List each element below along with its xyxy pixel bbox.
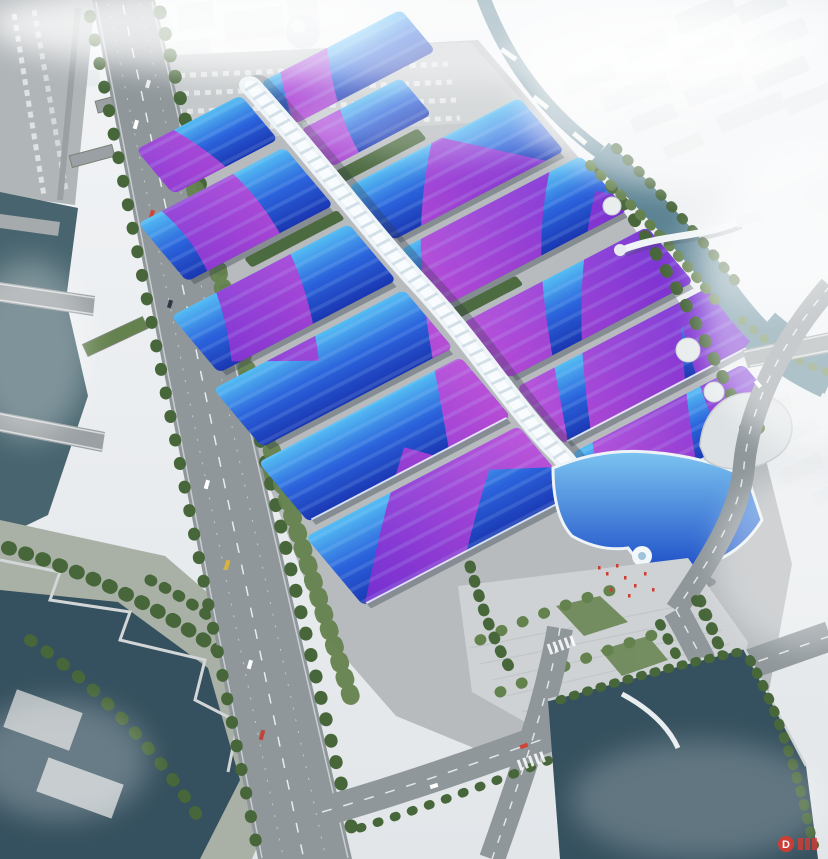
watermark-text: D (782, 839, 790, 851)
aerial-render-image: D (0, 0, 828, 859)
aerial-render-canvas: D (0, 0, 828, 859)
watermark-glyphs (798, 838, 817, 850)
